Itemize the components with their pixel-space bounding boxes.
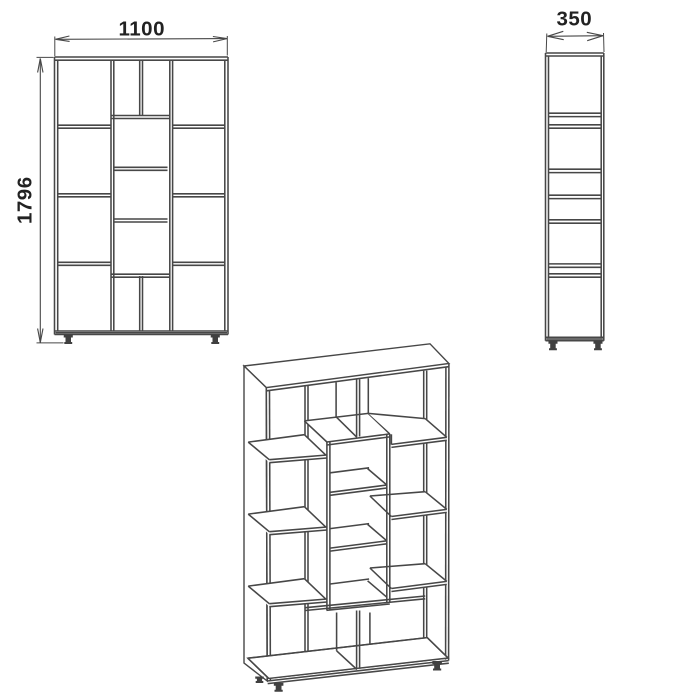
svg-text:1796: 1796 bbox=[14, 176, 37, 224]
svg-text:350: 350 bbox=[557, 8, 593, 31]
svg-text:1100: 1100 bbox=[119, 18, 165, 41]
